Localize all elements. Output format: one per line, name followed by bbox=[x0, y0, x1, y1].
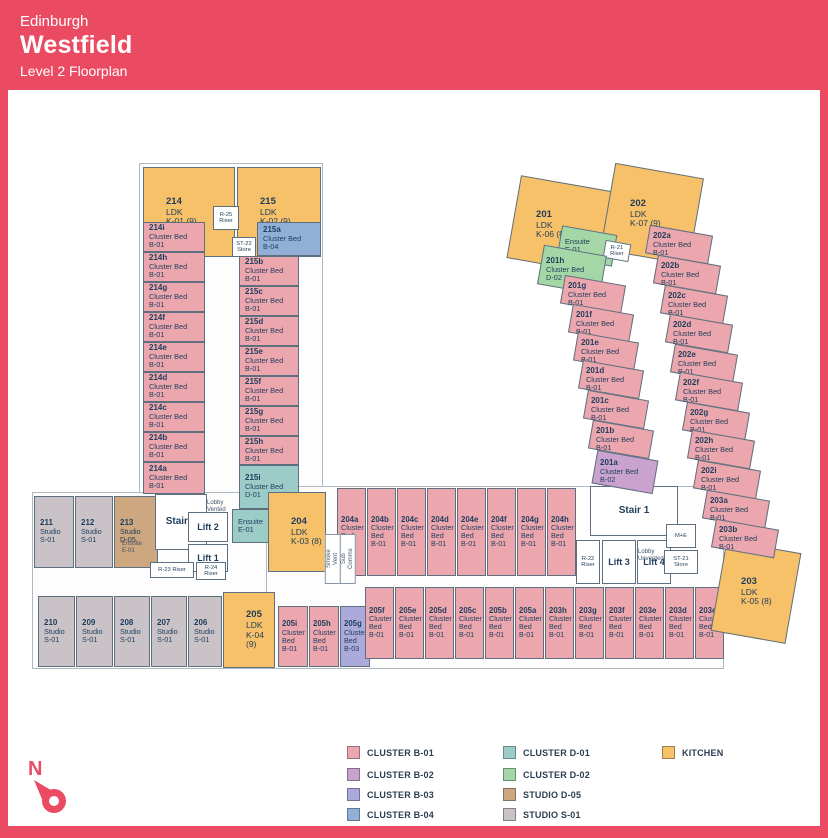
room-label: 214eCluster BedB-01 bbox=[144, 344, 204, 369]
plan-annotation: EnsuiteE-01 bbox=[122, 541, 142, 555]
room-label: 214gCluster BedB-01 bbox=[144, 284, 204, 309]
room-210: 210StudioS-01 bbox=[38, 596, 75, 667]
room-label: 204gClusterBedB-01 bbox=[518, 516, 545, 549]
room-label: 202bCluster BedB-01 bbox=[656, 262, 718, 287]
room-label: 214fCluster BedB-01 bbox=[144, 314, 204, 339]
room-204f: 204fClusterBedB-01 bbox=[487, 488, 516, 576]
room-label: 205fClusterBedB-01 bbox=[366, 607, 393, 640]
room-label-line: Store bbox=[233, 247, 255, 253]
legend-label: STUDIO S-01 bbox=[523, 810, 581, 820]
room-208: 208StudioS-01 bbox=[114, 596, 150, 667]
room-label: 203bCluster BedB-01 bbox=[714, 526, 776, 551]
plan-annotation: LobbyVented bbox=[207, 500, 226, 514]
room-215f: 215fCluster BedB-01 bbox=[239, 376, 299, 406]
room-205i: 205iClusterBedB-01 bbox=[278, 606, 308, 667]
room-label-line: B-01 bbox=[149, 482, 204, 490]
room-205e: 205eClusterBedB-01 bbox=[395, 587, 424, 659]
room-214h: 214hCluster BedB-01 bbox=[143, 252, 205, 282]
room-label-line: B-01 bbox=[429, 631, 453, 639]
room-label: 210StudioS-01 bbox=[39, 619, 74, 644]
room-label-line: Riser bbox=[197, 571, 225, 577]
room-label-line: B-01 bbox=[149, 421, 204, 429]
room-215e: 215eCluster BedB-01 bbox=[239, 346, 299, 376]
room-st-21: ST-21Store bbox=[664, 550, 698, 574]
room-214i: 214iCluster BedB-01 bbox=[143, 222, 205, 252]
legend-label: CLUSTER B-03 bbox=[367, 790, 434, 800]
legend-swatch-icon bbox=[503, 768, 516, 781]
room-label: M+E bbox=[667, 533, 695, 539]
floorplan: 214LDKK-01 (9)215LDKK-02 (9)R-25Riser214… bbox=[0, 0, 828, 838]
legend-swatch-icon bbox=[347, 788, 360, 801]
plan-annotation-line: E-01 bbox=[122, 548, 142, 555]
room-label: 215bCluster BedB-01 bbox=[240, 258, 298, 283]
room-214b: 214bCluster BedB-01 bbox=[143, 432, 205, 462]
room-206: 206StudioS-01 bbox=[188, 596, 222, 667]
north-label: N bbox=[28, 758, 42, 781]
room-label-line: B-01 bbox=[149, 301, 204, 309]
room-label: 215cCluster BedB-01 bbox=[240, 288, 298, 313]
room-label-line: B-01 bbox=[461, 540, 485, 548]
plan-annotation-line: Ensuite bbox=[122, 541, 142, 548]
room-label-line: B-01 bbox=[669, 631, 693, 639]
room-label: 202dCluster BedB-01 bbox=[668, 321, 730, 346]
room-label-line: B-01 bbox=[491, 540, 515, 548]
room-214a: 214aCluster BedB-01 bbox=[143, 462, 205, 494]
room-label: Stair 1 bbox=[591, 505, 677, 516]
room-label-line: K-05 (8) bbox=[741, 597, 793, 607]
room-label: 203dClusterBedB-01 bbox=[666, 607, 693, 640]
room-label: 201bCluster BedB-01 bbox=[591, 427, 651, 452]
room-205f: 205fClusterBedB-01 bbox=[365, 587, 394, 659]
room-label: 201aCluster BedB-02 bbox=[595, 459, 655, 484]
room-label: 203hClusterBedB-01 bbox=[546, 607, 573, 640]
plan-annotation-line: Smoke bbox=[326, 537, 333, 581]
room-r-25: R-25Riser bbox=[213, 206, 239, 230]
room-stair-1: Stair 1 bbox=[590, 486, 678, 536]
room-label: 214cCluster BedB-01 bbox=[144, 404, 204, 429]
plan-annotation-line: Vented bbox=[207, 507, 226, 514]
room-205d: 205dClusterBedB-01 bbox=[425, 587, 454, 659]
room-label: R-25Riser bbox=[214, 212, 238, 225]
room-204b: 204bClusterBedB-01 bbox=[367, 488, 396, 576]
room-label-line: B-01 bbox=[282, 645, 307, 653]
room-label: 204dClusterBedB-01 bbox=[428, 516, 455, 549]
room-label-line: R-21 bbox=[605, 245, 629, 251]
room-label: 214aCluster BedB-01 bbox=[144, 465, 204, 490]
room-label: 204cClusterBedB-01 bbox=[398, 516, 425, 549]
legend-label: CLUSTER D-01 bbox=[523, 748, 590, 758]
room-label: 204LDKK-03 (8) bbox=[269, 517, 325, 547]
plan-annotation-line: Sub bbox=[341, 537, 348, 581]
room-209: 209StudioS-01 bbox=[76, 596, 113, 667]
room-label-line: S-01 bbox=[120, 636, 149, 644]
room-label-line: B-01 bbox=[245, 455, 298, 463]
room-label: R-21Riser bbox=[605, 245, 629, 258]
room-203g: 203gClusterBedB-01 bbox=[575, 587, 604, 659]
room-label: 214hCluster BedB-01 bbox=[144, 254, 204, 279]
room-label: 205aClusterBedB-01 bbox=[516, 607, 543, 640]
legend-label: CLUSTER B-02 bbox=[367, 770, 434, 780]
room-label: 201cCluster BedB-01 bbox=[586, 397, 646, 422]
room-label: 203gClusterBedB-01 bbox=[576, 607, 603, 640]
legend-swatch-icon bbox=[347, 808, 360, 821]
room-215d: 215dCluster BedB-01 bbox=[239, 316, 299, 346]
legend-item: CLUSTER D-02 bbox=[503, 768, 590, 781]
room-label-line: B-01 bbox=[371, 540, 395, 548]
room-label-line: B-01 bbox=[149, 361, 204, 369]
room-203: 203LDKK-05 (8) bbox=[711, 540, 802, 644]
room-label-line: B-01 bbox=[519, 631, 543, 639]
room-label-line: B-01 bbox=[369, 631, 393, 639]
room-label-line: S-01 bbox=[157, 636, 186, 644]
room-label: 202iCluster BedB-01 bbox=[696, 467, 758, 492]
plan-annotation: LobbyUnvented bbox=[638, 549, 664, 563]
room-211: 211StudioS-01 bbox=[34, 496, 74, 568]
room-203d: 203dClusterBedB-01 bbox=[665, 587, 694, 659]
legend-label: KITCHEN bbox=[682, 748, 723, 758]
room-215c: 215cCluster BedB-01 bbox=[239, 286, 299, 316]
legend-label: CLUSTER D-02 bbox=[523, 770, 590, 780]
room-label: 214iCluster BedB-01 bbox=[144, 224, 204, 249]
room-label-line: Riser bbox=[577, 562, 599, 568]
room-204: 204LDKK-03 (8) bbox=[268, 492, 326, 572]
room-label: 205bClusterBedB-01 bbox=[486, 607, 513, 640]
room-label-line: B-01 bbox=[489, 631, 513, 639]
room-label: Lift 2 bbox=[189, 522, 227, 532]
plan-annotation-line: Lobby bbox=[207, 500, 226, 507]
legend-label: STUDIO D-05 bbox=[523, 790, 581, 800]
room-214g: 214gCluster BedB-01 bbox=[143, 282, 205, 312]
room-label: 204eClusterBedB-01 bbox=[458, 516, 485, 549]
room-203h: 203hClusterBedB-01 bbox=[545, 587, 574, 659]
legend-item: CLUSTER B-02 bbox=[347, 768, 434, 781]
room-label-line: B-01 bbox=[245, 365, 298, 373]
room-label-line: K-04 (9) bbox=[246, 631, 274, 650]
room-m-e: M+E bbox=[666, 524, 696, 548]
room-204g: 204gClusterBedB-01 bbox=[517, 488, 546, 576]
room-215a: 215aCluster BedB-04 bbox=[257, 222, 321, 256]
room-label-line: B-01 bbox=[245, 425, 298, 433]
room-r-22: R-22Riser bbox=[576, 540, 600, 584]
room-label-line: B-01 bbox=[149, 241, 204, 249]
room-215h: 215hCluster BedB-01 bbox=[239, 436, 299, 465]
room-204h: 204hClusterBedB-01 bbox=[547, 488, 576, 576]
room-label: 205dClusterBedB-01 bbox=[426, 607, 453, 640]
room-205c: 205cClusterBedB-01 bbox=[455, 587, 484, 659]
room-215b: 215bCluster BedB-01 bbox=[239, 256, 299, 286]
room-label-line: B-01 bbox=[549, 631, 573, 639]
room-205a: 205aClusterBedB-01 bbox=[515, 587, 544, 659]
room-label-line: B-01 bbox=[245, 275, 298, 283]
room-label: 202aCluster BedB-01 bbox=[648, 232, 710, 257]
room-213: 213StudioD-05 bbox=[114, 496, 158, 568]
room-label: 215gCluster BedB-01 bbox=[240, 408, 298, 433]
room-215g: 215gCluster BedB-01 bbox=[239, 406, 299, 436]
room-label-line: B-02 bbox=[600, 476, 655, 484]
room-214f: 214fCluster BedB-01 bbox=[143, 312, 205, 342]
legend-label: CLUSTER B-04 bbox=[367, 810, 434, 820]
room-label-line: B-01 bbox=[639, 631, 663, 639]
north-indicator: N bbox=[20, 758, 76, 824]
room-203e: 203eClusterBedB-01 bbox=[635, 587, 664, 659]
room-label-line: Riser bbox=[214, 218, 238, 224]
plan-annotation: SmokeVent bbox=[325, 534, 341, 584]
room-205b: 205bClusterBedB-01 bbox=[485, 587, 514, 659]
room-207: 207StudioS-01 bbox=[151, 596, 187, 667]
room-label-line: B-01 bbox=[401, 540, 425, 548]
room-r-24: R-24Riser bbox=[196, 562, 226, 580]
room-lift-2: Lift 2 bbox=[188, 512, 228, 542]
legend-item: KITCHEN bbox=[662, 746, 723, 759]
room-label: R-24Riser bbox=[197, 565, 225, 578]
room-label: 205LDKK-04 (9) bbox=[224, 610, 274, 649]
room-label-line: B-01 bbox=[149, 331, 204, 339]
room-label-line: B-01 bbox=[149, 451, 204, 459]
room-label: 205eClusterBedB-01 bbox=[396, 607, 423, 640]
legend-item: CLUSTER D-01 bbox=[503, 746, 590, 759]
room-label: ST-21Store bbox=[665, 556, 697, 569]
room-label: R-22Riser bbox=[577, 556, 599, 569]
plan-annotation-line: Comms bbox=[348, 537, 355, 581]
room-label-line: S-01 bbox=[40, 536, 73, 544]
room-label: 203LDKK-05 (8) bbox=[719, 577, 793, 607]
room-label: 211StudioS-01 bbox=[35, 519, 73, 544]
legend-item: CLUSTER B-04 bbox=[347, 808, 434, 821]
room-lift-3: Lift 3 bbox=[602, 540, 636, 584]
room-label-line: Riser bbox=[605, 251, 629, 257]
room-label: 208StudioS-01 bbox=[115, 619, 149, 644]
room-label: 204bClusterBedB-01 bbox=[368, 516, 395, 549]
room-label-line: S-01 bbox=[81, 536, 112, 544]
room-label-line: B-01 bbox=[399, 631, 423, 639]
room-212: 212StudioS-01 bbox=[75, 496, 113, 568]
room-label-line: B-01 bbox=[149, 271, 204, 279]
room-r-23: R-23 Riser bbox=[150, 562, 194, 578]
room-label-line: R-23 Riser bbox=[151, 567, 193, 573]
room-label-line: B-01 bbox=[245, 335, 298, 343]
plan-annotation: SubComms bbox=[340, 534, 356, 584]
room-label-line: B-01 bbox=[245, 395, 298, 403]
room-label-line: Stair 1 bbox=[591, 505, 677, 516]
plan-annotation-line: Vent bbox=[333, 537, 340, 581]
room-label: 204hClusterBedB-01 bbox=[548, 516, 575, 549]
legend-item: CLUSTER B-01 bbox=[347, 746, 434, 759]
room-205h: 205hClusterBedB-01 bbox=[309, 606, 339, 667]
room-label: Lift 3 bbox=[603, 557, 635, 567]
legend-swatch-icon bbox=[347, 768, 360, 781]
room-label: R-23 Riser bbox=[151, 567, 193, 573]
room-label: 214dCluster BedB-01 bbox=[144, 374, 204, 399]
legend-label: CLUSTER B-01 bbox=[367, 748, 434, 758]
room-205: 205LDKK-04 (9) bbox=[223, 592, 275, 668]
room-label-line: B-01 bbox=[313, 645, 338, 653]
legend-swatch-icon bbox=[503, 746, 516, 759]
room-204e: 204eClusterBedB-01 bbox=[457, 488, 486, 576]
room-label: 212StudioS-01 bbox=[76, 519, 112, 544]
room-label: 203aCluster BedB-01 bbox=[705, 497, 767, 522]
legend-swatch-icon bbox=[347, 746, 360, 759]
room-label-line: S-01 bbox=[194, 636, 221, 644]
legend-item: CLUSTER B-03 bbox=[347, 788, 434, 801]
room-label: 205cClusterBedB-01 bbox=[456, 607, 483, 640]
plan-annotation-line: Unvented bbox=[638, 556, 664, 563]
room-label: 205hClusterBedB-01 bbox=[310, 620, 338, 653]
room-label-line: B-01 bbox=[245, 305, 298, 313]
room-label-line: B-01 bbox=[431, 540, 455, 548]
room-204c: 204cClusterBedB-01 bbox=[397, 488, 426, 576]
room-204d: 204dClusterBedB-01 bbox=[427, 488, 456, 576]
room-label-line: S-01 bbox=[44, 636, 74, 644]
room-label-line: B-04 bbox=[263, 243, 320, 251]
room-label: ST-22Store bbox=[233, 241, 255, 254]
room-label-line: Lift 3 bbox=[603, 557, 635, 567]
room-214c: 214cCluster BedB-01 bbox=[143, 402, 205, 432]
room-214e: 214eCluster BedB-01 bbox=[143, 342, 205, 372]
room-label: 215aCluster BedB-04 bbox=[258, 226, 320, 251]
room-label: 207StudioS-01 bbox=[152, 619, 186, 644]
room-label-line: S-01 bbox=[82, 636, 112, 644]
room-label: 215hCluster BedB-01 bbox=[240, 438, 298, 463]
room-label-line: B-01 bbox=[521, 540, 545, 548]
room-label-line: B-01 bbox=[719, 543, 776, 551]
room-label: 201dCluster BedB-01 bbox=[581, 367, 641, 392]
room-label: 215eCluster BedB-01 bbox=[240, 348, 298, 373]
room-label-line: M+E bbox=[667, 533, 695, 539]
room-label: 203eClusterBedB-01 bbox=[636, 607, 663, 640]
legend-swatch-icon bbox=[503, 788, 516, 801]
room-label-line: B-01 bbox=[149, 391, 204, 399]
legend-item: STUDIO D-05 bbox=[503, 788, 581, 801]
room-label-line: Store bbox=[665, 562, 697, 568]
legend-swatch-icon bbox=[662, 746, 675, 759]
room-label-line: B-01 bbox=[579, 631, 603, 639]
room-label-line: B-01 bbox=[699, 631, 723, 639]
room-label: 202hCluster BedB-01 bbox=[690, 437, 752, 462]
room-label: 215dCluster BedB-01 bbox=[240, 318, 298, 343]
plan-annotation-line: Lobby bbox=[638, 549, 664, 556]
legend-swatch-icon bbox=[503, 808, 516, 821]
room-label: 214bCluster BedB-01 bbox=[144, 434, 204, 459]
room-203f: 203fClusterBedB-01 bbox=[605, 587, 634, 659]
room-label: 205iClusterBedB-01 bbox=[279, 620, 307, 653]
room-label-line: Lift 2 bbox=[189, 522, 227, 532]
room-label: 209StudioS-01 bbox=[77, 619, 112, 644]
room-label: 204fClusterBedB-01 bbox=[488, 516, 515, 549]
room-label: 206StudioS-01 bbox=[189, 619, 221, 644]
room-label-line: B-01 bbox=[459, 631, 483, 639]
room-214d: 214dCluster BedB-01 bbox=[143, 372, 205, 402]
room-st-22: ST-22Store bbox=[232, 237, 256, 257]
room-label: 215fCluster BedB-01 bbox=[240, 378, 298, 403]
room-label-line: B-01 bbox=[609, 631, 633, 639]
room-label: 202fCluster BedB-01 bbox=[678, 379, 740, 404]
legend-item: STUDIO S-01 bbox=[503, 808, 581, 821]
room-label-line: K-03 (8) bbox=[291, 537, 325, 547]
room-label-line: B-01 bbox=[551, 540, 575, 548]
room-label: 203fClusterBedB-01 bbox=[606, 607, 633, 640]
